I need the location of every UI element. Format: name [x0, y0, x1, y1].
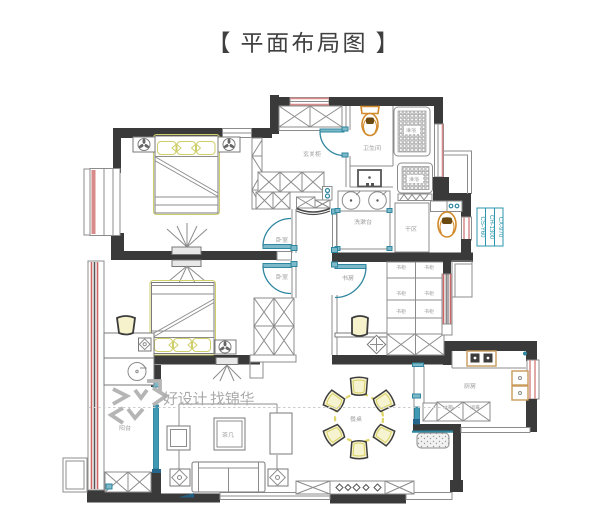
svg-text:CX-970: CX-970 — [497, 217, 503, 238]
svg-text:CS-Y60: CS-Y60 — [479, 216, 485, 238]
svg-text:CH-1300: CH-1300 — [488, 215, 494, 240]
